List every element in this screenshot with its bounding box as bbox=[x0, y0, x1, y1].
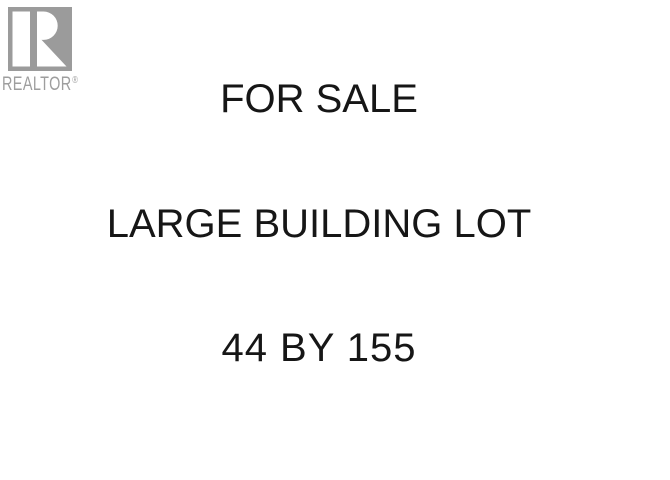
sign-line-for-sale: FOR SALE bbox=[0, 79, 638, 119]
listing-placeholder-image: REALTOR® FOR SALE LARGE BUILDING LOT 44 … bbox=[0, 0, 670, 480]
sign-line-lot-dimensions: 44 BY 155 bbox=[0, 328, 638, 368]
sign-line-large-building-lot: LARGE BUILDING LOT bbox=[0, 204, 638, 244]
logo-r-stem bbox=[13, 12, 31, 67]
realtor-block-r-icon bbox=[8, 7, 72, 71]
